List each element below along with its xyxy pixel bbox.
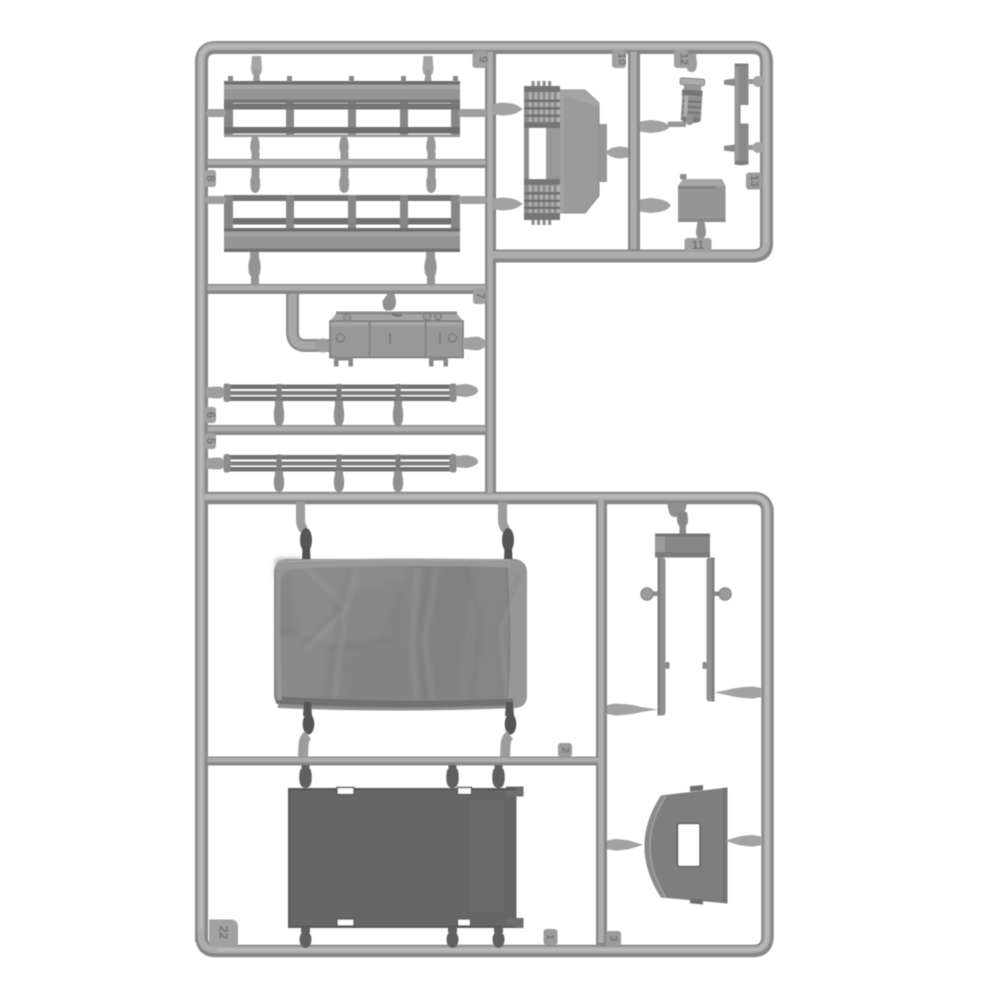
svg-text:2: 2 (559, 747, 571, 753)
svg-text:5: 5 (204, 438, 216, 445)
svg-text:3: 3 (607, 935, 619, 941)
svg-text:7: 7 (474, 293, 486, 299)
svg-text:1: 1 (544, 934, 555, 940)
svg-text:22: 22 (217, 926, 231, 940)
svg-text:10: 10 (616, 53, 628, 65)
svg-text:12: 12 (678, 53, 690, 65)
svg-text:6: 6 (204, 412, 216, 418)
svg-text:8: 8 (204, 175, 216, 182)
svg-text:13: 13 (748, 175, 760, 187)
svg-text:9: 9 (477, 56, 491, 63)
svg-text:11: 11 (692, 240, 705, 252)
